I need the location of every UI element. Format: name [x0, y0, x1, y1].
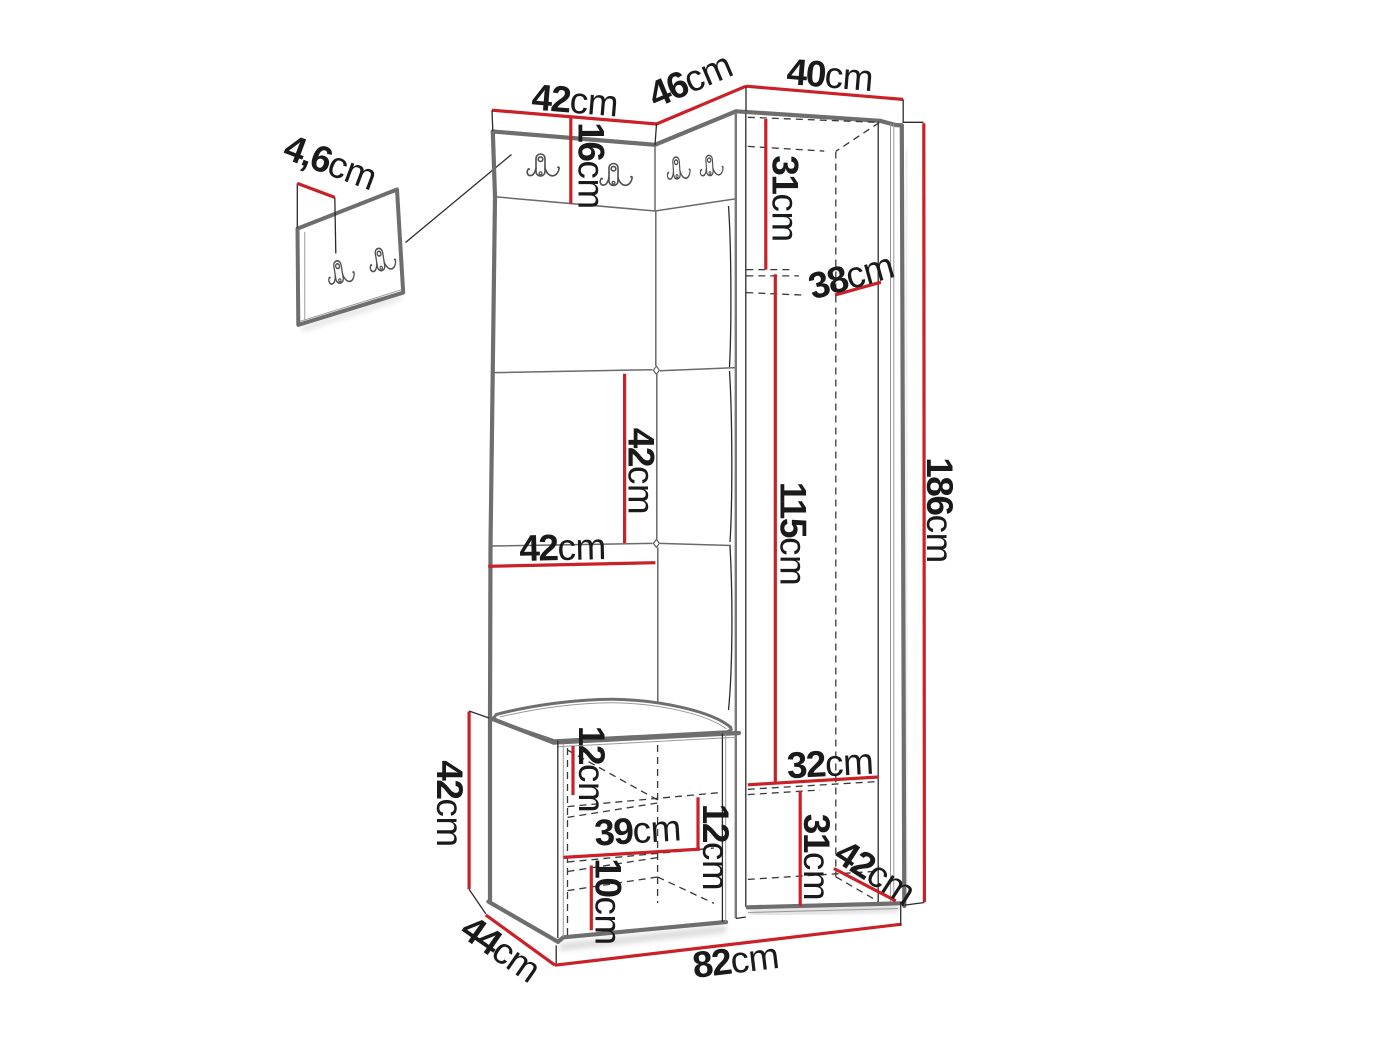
svg-text:10cm: 10cm: [588, 858, 629, 944]
svg-text:186cm: 186cm: [919, 457, 960, 563]
svg-text:31cm: 31cm: [765, 155, 806, 241]
svg-text:12cm: 12cm: [695, 804, 736, 890]
svg-text:39cm: 39cm: [593, 807, 682, 853]
svg-text:42cm: 42cm: [519, 526, 606, 569]
svg-text:42cm: 42cm: [530, 76, 620, 124]
svg-text:32cm: 32cm: [786, 741, 875, 786]
svg-text:16cm: 16cm: [571, 122, 612, 208]
svg-text:31cm: 31cm: [796, 814, 837, 900]
svg-text:40cm: 40cm: [785, 51, 875, 99]
svg-text:42cm: 42cm: [429, 760, 470, 846]
svg-text:115cm: 115cm: [773, 482, 814, 586]
svg-text:12cm: 12cm: [571, 726, 612, 812]
svg-text:42cm: 42cm: [620, 428, 661, 514]
